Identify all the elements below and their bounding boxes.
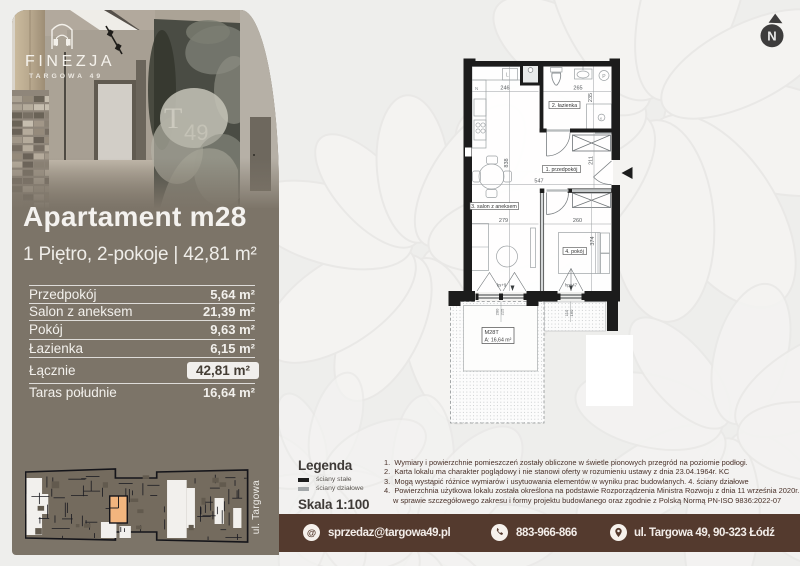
svg-text:49: 49 <box>184 120 208 145</box>
svg-text:2. łazienka: 2. łazienka <box>552 103 577 109</box>
svg-text:4. pokój: 4. pokój <box>565 249 584 255</box>
svg-text:265: 265 <box>573 86 582 92</box>
svg-text:3. salon z aneksem: 3. salon z aneksem <box>471 204 517 210</box>
svg-text:M28T: M28T <box>485 330 500 336</box>
svg-text:hp+47: hp+47 <box>565 283 578 288</box>
svg-text:1. przedpokój: 1. przedpokój <box>546 167 578 173</box>
svg-text:547: 547 <box>534 179 543 185</box>
svg-text:A: 16,64 m²: A: 16,64 m² <box>485 338 512 344</box>
svg-text:FINEZJA: FINEZJA <box>25 53 115 70</box>
svg-text:N: N <box>767 29 776 44</box>
svg-text:TARGOWA 49: TARGOWA 49 <box>29 73 103 80</box>
svg-text:246: 246 <box>500 86 509 92</box>
svg-text:T: T <box>164 102 182 135</box>
svg-text:838: 838 <box>504 158 510 167</box>
svg-text:211: 211 <box>589 156 595 165</box>
svg-text:L: L <box>506 73 509 79</box>
svg-text:225: 225 <box>500 308 505 315</box>
svg-text:374: 374 <box>590 236 596 245</box>
svg-text:235: 235 <box>588 93 594 102</box>
svg-text:260: 260 <box>573 218 582 224</box>
svg-text:hs+9: hs+9 <box>497 283 507 288</box>
svg-text:160: 160 <box>569 309 574 316</box>
svg-text:N: N <box>475 86 478 91</box>
svg-text:279: 279 <box>499 218 508 224</box>
svg-text:@: @ <box>307 528 316 539</box>
